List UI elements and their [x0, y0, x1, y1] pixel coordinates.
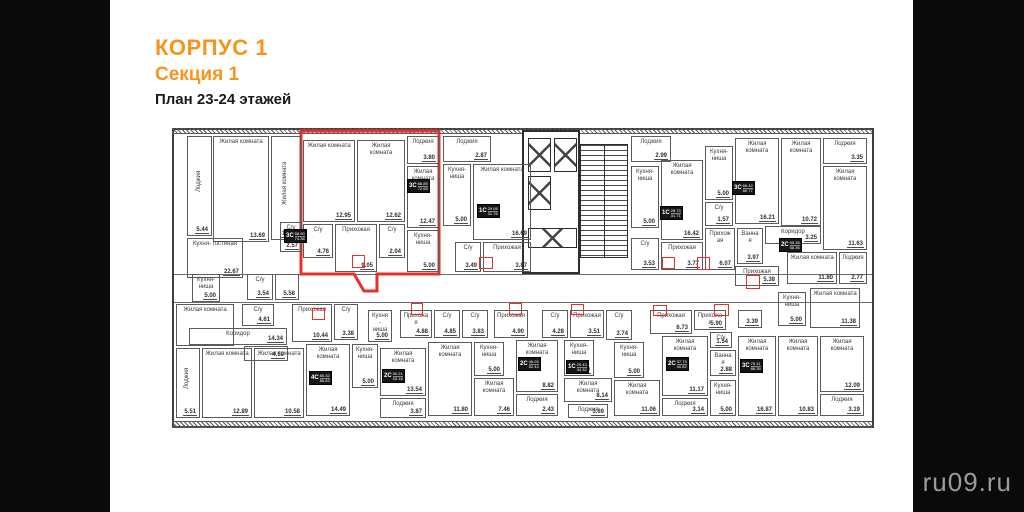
room-label: Жилая комната — [790, 255, 834, 262]
room-area: 12.89 — [232, 409, 249, 416]
apartment-type-code: 2С — [384, 373, 392, 379]
room-area: 3.87 — [514, 263, 528, 270]
entrance-door-marker[interactable] — [571, 304, 584, 315]
plan-room: Жилая комната7.46 — [474, 378, 514, 416]
room-label: Жилая комната — [826, 169, 864, 183]
room-area: 5.00 — [789, 317, 803, 324]
plan-room: Кухня- ниша5.00 — [443, 164, 471, 226]
room-label: Кухня- ниша — [713, 383, 733, 397]
room-label: Кухня- ниша — [477, 345, 501, 359]
room-label: С/у — [545, 313, 565, 320]
room-area: 5.00 — [627, 369, 641, 376]
right-black-bar — [913, 0, 1024, 512]
room-area: 3.97 — [746, 255, 760, 262]
entrance-door-marker[interactable] — [714, 304, 729, 316]
plan-room: Жилая комната12.95 — [303, 140, 355, 222]
room-label: Кухня- ниша — [567, 343, 591, 357]
room-area: 10.58 — [284, 409, 301, 416]
room-label: Жилая комната — [741, 339, 773, 353]
room-label: Жилая комната — [360, 143, 402, 157]
room-area: 3.69 — [591, 409, 605, 416]
room-area: 12.47 — [419, 219, 436, 226]
room-label: Лоджия — [823, 397, 861, 404]
apartment-type-tag: 3С58.9074.38 — [284, 229, 307, 243]
plan-room: Жилая комната11.80 — [428, 342, 472, 416]
room-label: С/у — [458, 245, 478, 252]
room-label: Жилая комната — [617, 383, 657, 397]
room-area: 13.54 — [406, 387, 423, 394]
room-area: 12.62 — [385, 213, 402, 220]
apartment-type-code: 3С — [286, 233, 294, 239]
room-area: 3.54 — [256, 291, 270, 298]
room-area: 16.42 — [683, 231, 700, 238]
plan-room: С/у3.74 — [606, 310, 632, 340]
plan-room: Жилая комната10.83 — [778, 336, 818, 416]
room-area: 12.95 — [335, 213, 352, 220]
room-label: Лоджия — [184, 353, 191, 403]
room-area: 16.21 — [759, 215, 776, 222]
room-area: 1.54 — [715, 339, 729, 346]
apartment-total-area: 58.36 — [790, 246, 800, 250]
plan-room: Жилая комната16.42 — [661, 160, 703, 240]
plan-room: Лоджия3.80 — [407, 136, 439, 164]
room-label: С/у — [465, 313, 485, 320]
room-area: 2.43 — [541, 407, 555, 414]
left-black-bar — [0, 0, 110, 512]
plan-sheet: КОРПУС 1 Секция 1 План 23-24 этажей Лодж… — [110, 0, 913, 512]
plan-room: Кухня- ниша5.00 — [631, 166, 659, 228]
apartment-type-tag: 2С55.3558.36 — [779, 238, 802, 252]
room-label: Лоджия — [826, 141, 864, 148]
apartment-total-area: 34.32 — [577, 368, 587, 372]
floors-subtitle: План 23-24 этажей — [155, 92, 291, 108]
room-label: Кухня- ниша — [634, 169, 656, 183]
plan-room: Ванная3.97 — [737, 228, 763, 264]
plan-room: С/у4.28 — [542, 310, 568, 338]
apartment-type-tag: 2С37.7340.82 — [666, 357, 689, 371]
room-area: 11.17 — [688, 387, 705, 394]
entrance-door-marker[interactable] — [479, 257, 493, 269]
plan-room: Лоджия3.69 — [568, 404, 608, 418]
room-label: Прихожая — [338, 227, 374, 234]
plan-room: Кухня- ниша5.00 — [368, 310, 392, 342]
room-area: 11.63 — [847, 241, 864, 248]
plan-room: С/у3.53 — [631, 238, 659, 270]
room-label: Ванная — [713, 353, 733, 367]
room-area: 5.90 — [709, 321, 723, 328]
apartment-total-area: 86.39 — [751, 367, 761, 371]
plan-room: Лоджия2.99 — [631, 136, 671, 162]
plan-room: Лоджия3.19 — [820, 394, 864, 416]
room-label: Прихожая — [708, 231, 732, 245]
apartment-type-tag: 3С68.8972.65 — [407, 179, 430, 193]
room-label: Кухня- ниша — [781, 295, 803, 309]
entrance-door-marker[interactable] — [312, 308, 325, 320]
apartment-total-area: 40.82 — [677, 365, 687, 369]
room-area: 22.67 — [223, 269, 240, 276]
room-area: 5.51 — [183, 409, 197, 416]
room-area: 4.76 — [316, 249, 330, 256]
room-area: 6.73 — [675, 325, 689, 332]
apartment-total-area: 52.44 — [529, 365, 539, 369]
room-label: С/у — [382, 227, 402, 234]
room-label: Лоджия — [634, 139, 668, 146]
room-area: 7.46 — [497, 407, 511, 414]
apartment-type-tag: 3С75.1186.39 — [740, 359, 763, 373]
plan-room: Коридор14.34 — [189, 328, 287, 345]
room-label: Жилая комната — [306, 143, 352, 150]
room-label: Жилая комната — [823, 339, 861, 353]
room-label: С/у — [250, 277, 270, 284]
plan-room: Жилая комната10.72 — [781, 138, 821, 226]
apartment-type-tag: 2С50.2153.16 — [382, 369, 405, 383]
room-area: 2.88 — [719, 367, 733, 374]
entrance-door-marker[interactable] — [653, 305, 667, 316]
plan-room: С/у4.85 — [434, 310, 460, 338]
room-area: 3.14 — [691, 407, 705, 414]
plan-room: 5.58 — [275, 274, 299, 300]
room-area: 16.69 — [511, 231, 528, 238]
room-label: Жилая комната — [309, 347, 347, 361]
room-area: 5.00 — [203, 293, 217, 300]
title-block: КОРПУС 1 Секция 1 План 23-24 этажей — [155, 36, 291, 108]
room-label: Лоджия — [446, 139, 488, 146]
room-label: Кухня- ниша — [371, 313, 389, 334]
room-label: Жилая комната — [664, 163, 700, 177]
plan-room: Лоджия2.87 — [443, 136, 491, 162]
room-label: Жилая комната — [813, 291, 857, 298]
room-label: Лоджия — [196, 141, 203, 221]
entrance-door-marker[interactable] — [746, 275, 760, 289]
room-label: С/у — [306, 227, 330, 234]
apartment-total-area: 85.83 — [320, 379, 330, 383]
apartment-type-tag: 2С46.0352.44 — [518, 357, 541, 371]
plan-room: С/у1.54 — [710, 332, 732, 348]
room-area: 2.57 — [285, 243, 299, 250]
plan-room: С/у3.83 — [462, 310, 488, 338]
room-label: Кухня- ниша — [708, 149, 730, 163]
entrance-door-marker[interactable] — [662, 257, 675, 269]
plan-room: Лоджия5.51 — [176, 348, 200, 418]
plan-room: Кухня- ниша5.00 — [614, 342, 644, 378]
plan-room: С/у4.76 — [303, 224, 333, 258]
room-area: 11.06 — [640, 407, 657, 414]
plan-room: Жилая комната13.69 — [213, 136, 269, 242]
room-area: 5.58 — [282, 291, 296, 298]
plan-room: Кухня- ниша5.00 — [407, 230, 439, 272]
room-label: Кухня- ниша — [410, 233, 436, 247]
room-area: 3.25 — [804, 235, 818, 242]
apartment-type-tag: 3С66.4280.77 — [732, 181, 755, 195]
room-area: 3.87 — [409, 409, 423, 416]
room-area: 6.07 — [718, 261, 732, 268]
plan-room: Лоджия5.44 — [187, 136, 212, 236]
room-area: 12.09 — [844, 383, 861, 390]
room-label: С/у — [634, 241, 656, 248]
room-area: 5.00 — [454, 217, 468, 224]
room-area: 2.99 — [654, 153, 668, 160]
room-label: С/у — [437, 313, 457, 320]
apartment-type-code: 2С — [520, 361, 528, 367]
room-area: 4.88 — [415, 329, 429, 336]
room-area: 5.38 — [762, 277, 776, 284]
plan-room: С/у3.49 — [455, 242, 481, 272]
room-area: 5.00 — [719, 407, 733, 414]
plan-room: Лоджия3.14 — [662, 398, 708, 416]
plan-room: Кухня- гостиная22.67 — [187, 238, 243, 278]
plan-room: С/у4.61 — [242, 304, 274, 326]
apartment-type-code: 1С — [662, 210, 670, 216]
room-label: Прихожая — [403, 313, 429, 327]
plan-room: Жилая комната16.69 — [473, 164, 531, 240]
apartment-type-code: 3С — [409, 183, 417, 189]
room-label: Кухня- ниша — [195, 277, 217, 291]
entrance-door-marker[interactable] — [411, 303, 423, 315]
room-area: 16.87 — [756, 407, 773, 414]
room-label: Лоджия — [410, 139, 436, 146]
room-label: Кухня- ниша — [617, 345, 641, 359]
apartment-total-area: 31.71 — [671, 214, 681, 218]
room-label: С/у — [245, 307, 271, 314]
room-label: Лоджия — [519, 397, 555, 404]
room-label: Кухня- гостиная — [190, 241, 240, 248]
plan-room: Жилая комната11.63 — [823, 166, 867, 250]
plan-room: Жилая комната12.47 — [407, 166, 439, 228]
room-label: Жилая комната — [781, 339, 815, 353]
apartment-total-area: 31.76 — [488, 212, 498, 216]
room-area: 3.74 — [615, 331, 629, 338]
apartment-type-tag: 4С80.3285.83 — [309, 371, 332, 385]
room-area: 5.00 — [361, 379, 375, 386]
room-label: Жилая комната — [282, 141, 289, 225]
room-area: 4.85 — [443, 329, 457, 336]
plan-room: С/у3.38 — [334, 304, 358, 340]
room-label: Жилая комната — [665, 339, 705, 353]
plan-room: С/у1.57 — [705, 202, 733, 226]
plan-room: Кухня- ниша5.00 — [352, 344, 378, 388]
plan-room: Лоджия3.87 — [380, 398, 426, 418]
room-label: Прихожая — [486, 245, 528, 252]
apartment-type-code: 2С — [781, 242, 789, 248]
room-area: 8.14 — [595, 393, 609, 400]
room-area: 10.44 — [312, 333, 329, 340]
plan-room: Жилая комната11.06 — [614, 380, 660, 416]
room-area: 3.38 — [341, 331, 355, 338]
room-area: 5.00 — [716, 191, 730, 198]
plan-room: Лоджия2.77 — [839, 252, 867, 284]
room-area: 2.87 — [474, 153, 488, 160]
plan-room: Жилая комната12.62 — [357, 140, 405, 222]
room-area: 13.69 — [249, 233, 266, 240]
plan-room: Кухня- ниша5.00 — [778, 292, 806, 326]
apartment-total-area: 80.77 — [743, 189, 753, 193]
apartment-total-area: 53.16 — [393, 377, 403, 381]
room-area: 3.51 — [587, 329, 601, 336]
room-area: 1.57 — [716, 217, 730, 224]
room-area: 4.28 — [551, 329, 565, 336]
apartment-total-area: 72.65 — [418, 187, 428, 191]
plan-room: Жилая комната11.80 — [787, 252, 837, 284]
building-title: КОРПУС 1 — [155, 36, 291, 59]
room-label: Лоджия — [383, 401, 423, 408]
room-area: 5.44 — [195, 227, 209, 234]
apartment-type-tag: 1С29.4334.32 — [566, 360, 589, 374]
room-label: Прихожая — [664, 245, 700, 252]
room-area: 3.83 — [471, 329, 485, 336]
plan-room: Жилая комната11.38 — [810, 288, 860, 328]
room-label: Жилая комната — [784, 141, 818, 155]
section-title: Секция 1 — [155, 65, 291, 85]
apartment-type-tag: 1С28.7331.71 — [660, 206, 683, 220]
room-area: 11.80 — [817, 275, 834, 282]
plan-room: Жилая комната12.09 — [820, 336, 864, 392]
room-area: 11.38 — [840, 319, 857, 326]
room-area: 5.00 — [487, 367, 501, 374]
room-label: Жилая комната — [205, 351, 249, 358]
room-area: 3.80 — [422, 155, 436, 162]
room-label: Жилая комната — [476, 167, 528, 174]
plan-room: Жилая комната16.87 — [738, 336, 776, 416]
room-area: 3.19 — [847, 407, 861, 414]
apartment-type-code: 1С — [479, 208, 487, 214]
apartment-type-code: 1С — [568, 364, 576, 370]
plan-room: Кухня- ниша5.00 — [192, 274, 220, 302]
room-label: Жилая комната — [519, 343, 555, 357]
site-watermark: ru09.ru — [923, 467, 1012, 498]
plan-room: Ванная2.88 — [710, 350, 736, 376]
room-area: 3.39 — [745, 319, 759, 326]
plan-room: Лоджия3.35 — [823, 138, 867, 164]
plan-room: Кухня- ниша5.00 — [705, 146, 733, 200]
apartment-total-area: 74.38 — [295, 237, 305, 241]
room-label: Кухня- ниша — [446, 167, 468, 181]
room-area: 4.90 — [511, 329, 525, 336]
room-area: 10.83 — [798, 407, 815, 414]
apartment-type-code: 4С — [311, 375, 319, 381]
room-label: Жилая комната — [431, 345, 469, 359]
plan-room: Жилая комната12.89 — [202, 348, 252, 418]
room-area: 2.77 — [850, 275, 864, 282]
plan-room: С/у3.54 — [247, 274, 273, 300]
entrance-door-marker[interactable] — [509, 303, 522, 315]
room-label: Лоджия — [842, 255, 864, 262]
room-label: Жилая комната — [477, 381, 511, 395]
room-area: 10.72 — [801, 217, 818, 224]
plan-room: 3.39 — [738, 310, 762, 328]
room-area: 3.53 — [642, 261, 656, 268]
plan-room: Лоджия2.43 — [516, 394, 558, 416]
room-label: Жилая комната — [383, 351, 423, 365]
room-area: 5.00 — [375, 333, 389, 340]
room-label: Кухня- ниша — [355, 347, 375, 361]
room-area: 5.00 — [642, 219, 656, 226]
room-area: 8.82 — [541, 383, 555, 390]
entrance-door-marker[interactable] — [697, 257, 710, 270]
room-area: 14.34 — [267, 336, 284, 343]
room-area: 3.49 — [464, 263, 478, 270]
entrance-door-marker[interactable] — [352, 255, 365, 268]
plan-room: Кухня- ниша5.00 — [710, 380, 736, 416]
apartment-type-code: 2С — [668, 361, 676, 367]
room-area: 3.35 — [850, 155, 864, 162]
plan-room: С/у2.04 — [379, 224, 405, 258]
apartment-type-code: 3С — [742, 363, 750, 369]
room-label: Жилая комната — [257, 351, 301, 358]
plan-room: Жилая комната10.58 — [254, 348, 304, 418]
room-label: Жилая комната — [738, 141, 776, 155]
apartment-type-tag: 1С29.0531.76 — [477, 204, 500, 218]
room-label: Жилая комната — [216, 139, 266, 146]
room-label: С/у — [337, 307, 355, 314]
plan-room: Жилая комната8.14 — [564, 378, 612, 402]
room-label: Ванная — [740, 231, 760, 245]
room-area: 14.49 — [330, 407, 347, 414]
apartment-type-code: 3С — [734, 185, 742, 191]
room-area: 5.00 — [422, 263, 436, 270]
room-area: 4.61 — [257, 317, 271, 324]
room-label: С/у — [609, 313, 629, 320]
room-label: Жилая комната — [179, 307, 231, 314]
room-label: С/у — [708, 205, 730, 212]
floor-plan: Лоджия5.44Жилая комната13.69Жилая комнат… — [172, 128, 874, 428]
room-area: 2.04 — [388, 249, 402, 256]
room-area: 11.80 — [452, 407, 469, 414]
plan-room: Кухня- ниша5.00 — [474, 342, 504, 376]
